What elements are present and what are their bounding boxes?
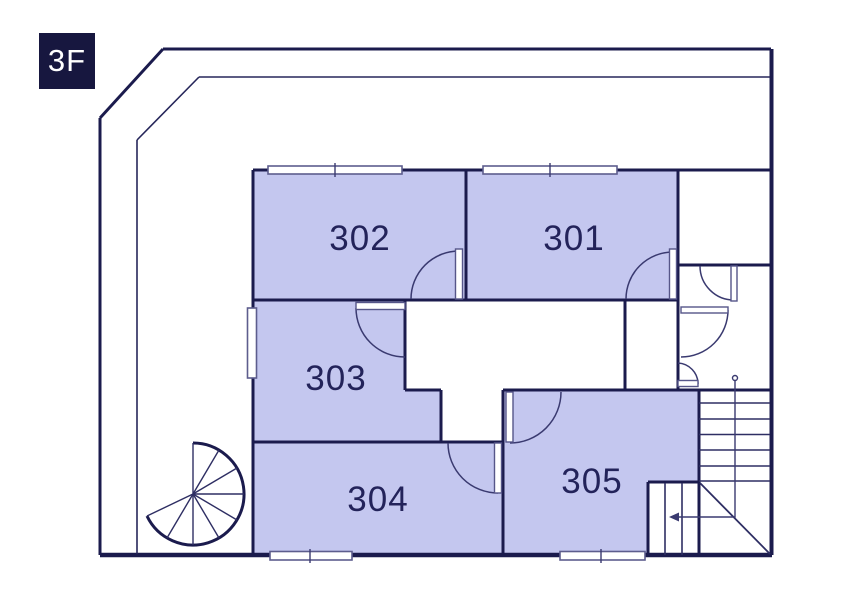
floor-plan-drawing [0, 0, 843, 596]
room-label-301: 301 [543, 219, 604, 259]
spiral-staircase-icon [147, 443, 244, 545]
room-label-303: 303 [305, 359, 366, 399]
floor-badge-label: 3F [48, 43, 86, 79]
window-303 [248, 308, 257, 378]
room-label-304: 304 [347, 480, 408, 520]
door-hall-small [678, 363, 698, 387]
window-305 [560, 549, 645, 563]
floor-badge: 3F [39, 33, 95, 89]
door-closet [700, 266, 737, 301]
window-304 [270, 549, 352, 563]
floor-plan: 3F 301 302 303 304 305 [0, 0, 843, 596]
door-hall-large [681, 307, 728, 357]
room-label-302: 302 [329, 219, 390, 259]
room-label-305: 305 [561, 462, 622, 502]
